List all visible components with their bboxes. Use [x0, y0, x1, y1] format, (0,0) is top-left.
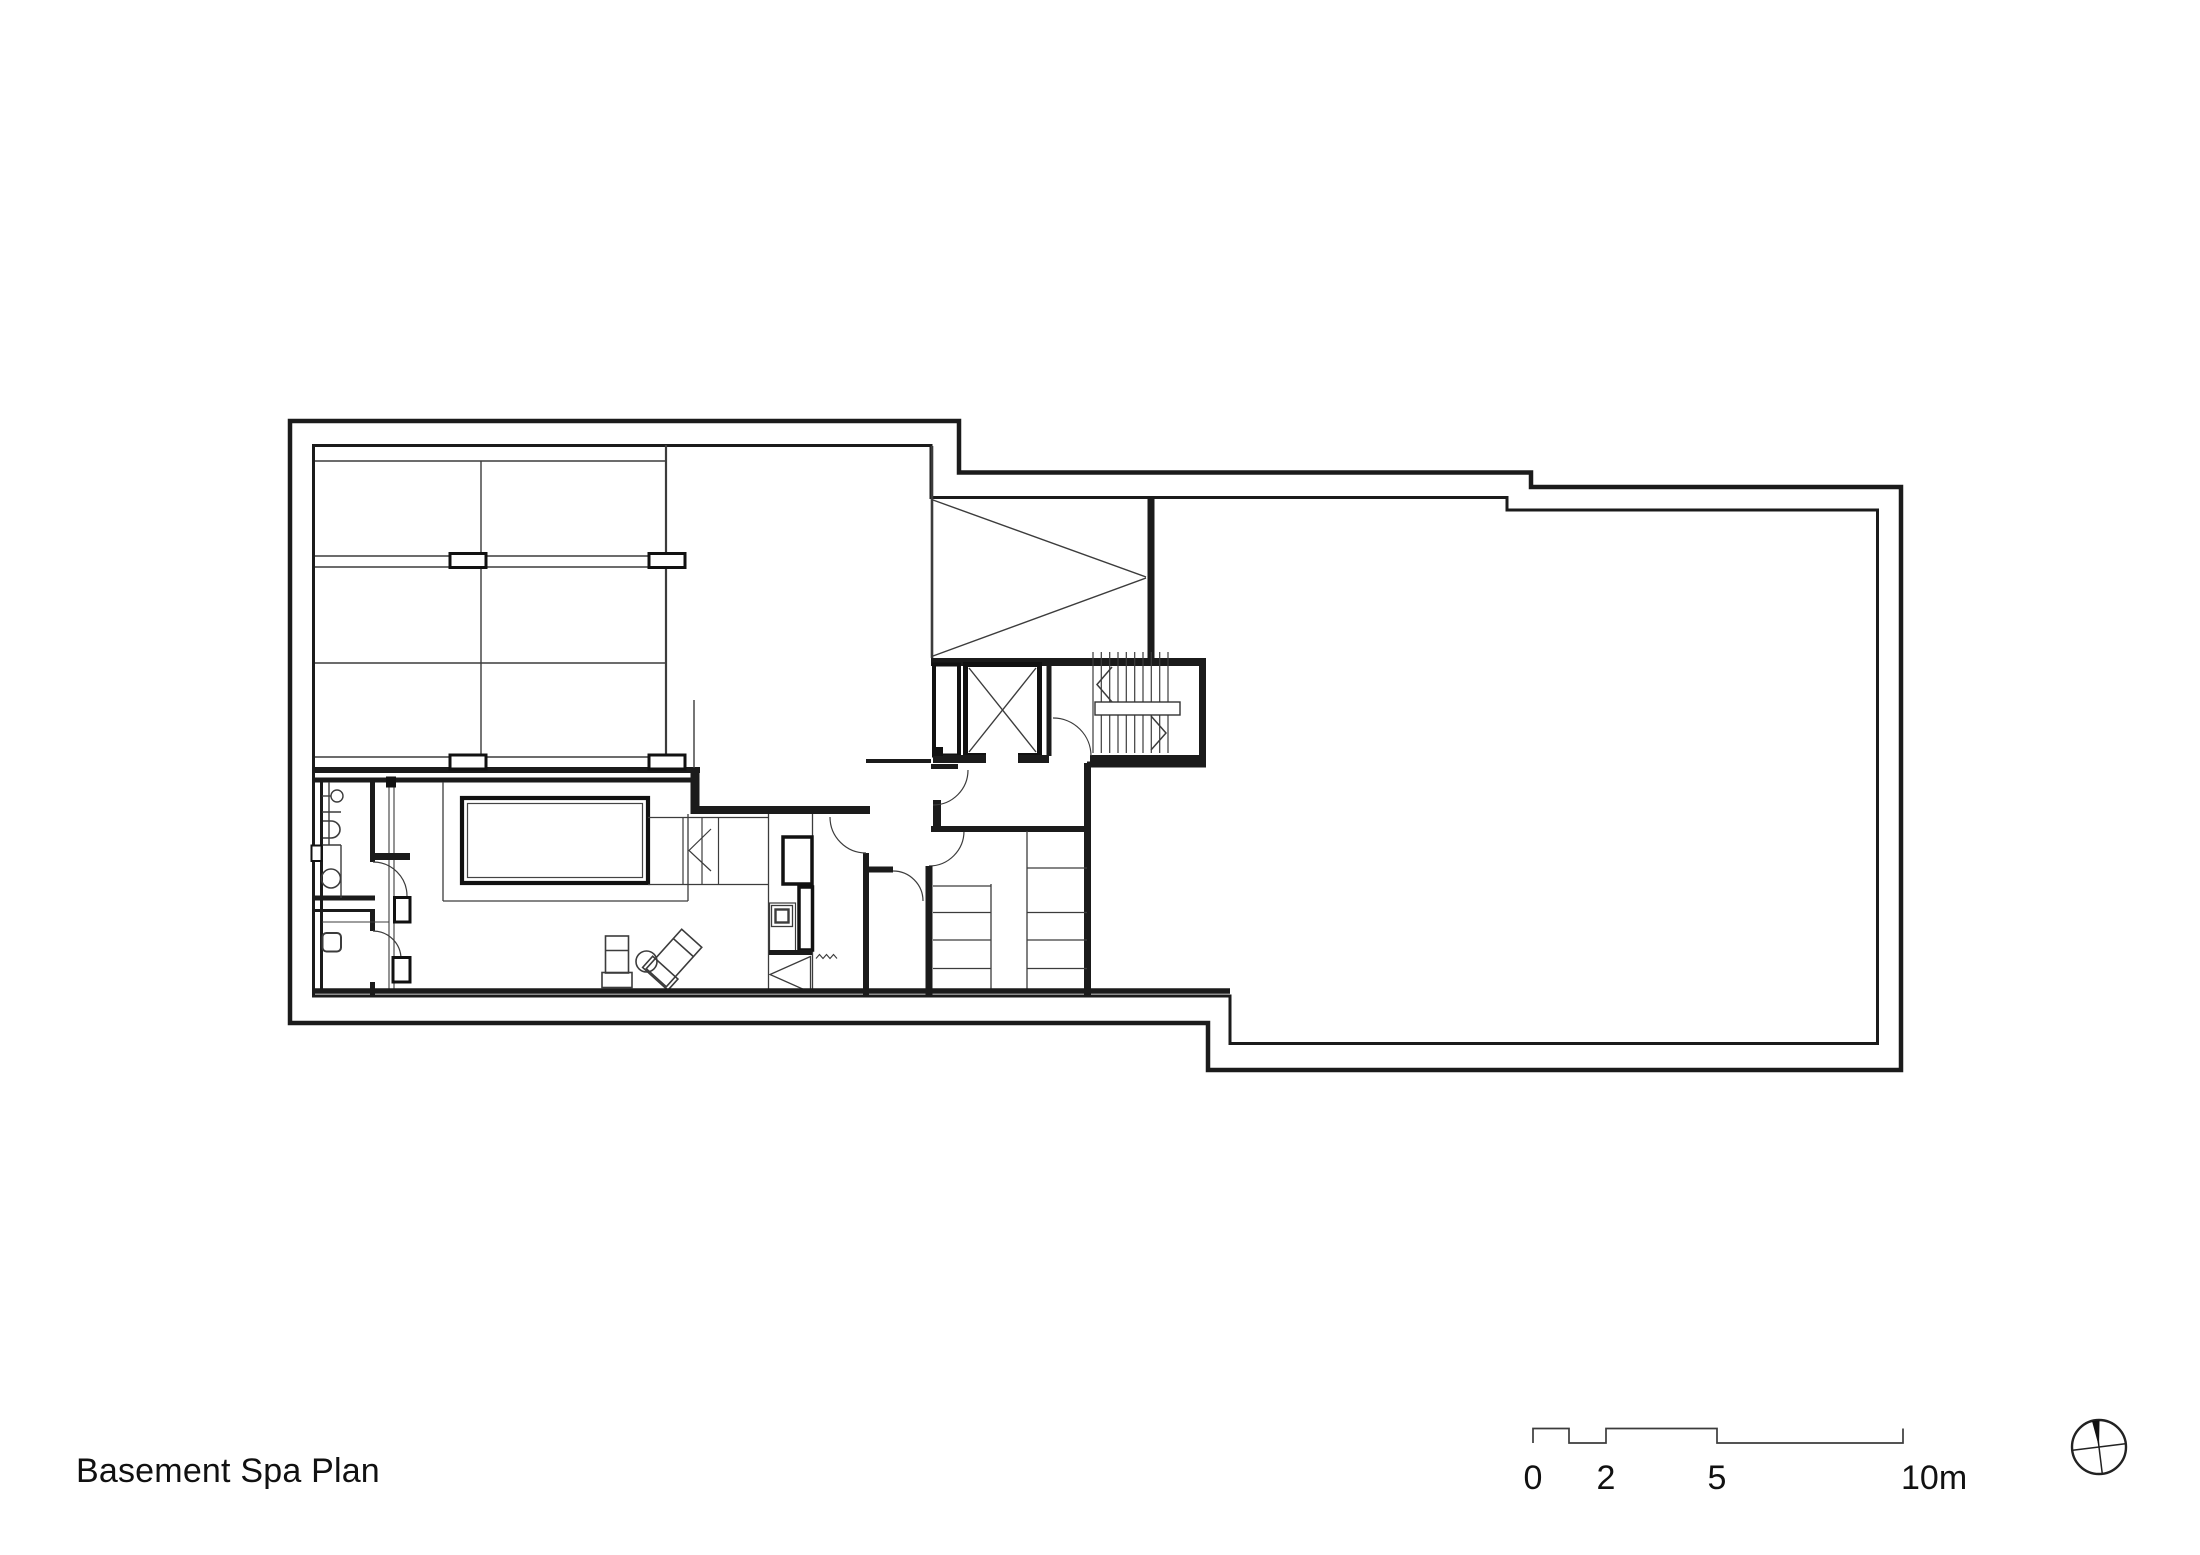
swimming-pool — [462, 798, 648, 883]
changing-rooms — [312, 777, 411, 997]
duct-shaft — [934, 665, 959, 756]
shower-strip — [769, 814, 838, 993]
storage-stair — [929, 763, 1206, 996]
ramp-room — [932, 446, 1151, 666]
water-symbol — [816, 955, 837, 959]
compass-north-icon — [2069, 1417, 2128, 1476]
niche — [312, 846, 322, 862]
scale-bar: 0 2 5 10m — [1524, 1429, 1968, 1498]
bench-symbol — [770, 957, 811, 993]
service-core — [931, 652, 1206, 766]
shower-stall — [783, 837, 812, 884]
lobby — [830, 747, 968, 996]
pool-steps — [648, 818, 768, 885]
shower-drain — [323, 933, 342, 952]
toilet — [323, 821, 340, 838]
wc-fixtures — [312, 782, 390, 952]
basin — [331, 790, 343, 802]
scale-label-5: 5 — [1708, 1459, 1727, 1497]
skylight-grid — [313, 445, 700, 770]
sheet: 0 2 5 10m Basement Spa Plan — [0, 0, 2200, 1555]
scale-label-0: 0 — [1524, 1459, 1543, 1497]
panel-clips — [450, 554, 685, 770]
stair-landing — [1095, 702, 1180, 715]
door-frame — [395, 898, 411, 923]
exterior-walls — [290, 421, 1901, 1070]
elevator-shaft — [966, 665, 1040, 761]
shower-stall — [799, 887, 813, 950]
door-frame — [393, 958, 410, 983]
loungers — [602, 927, 704, 990]
floor-plan-drawing: 0 2 5 10m — [0, 0, 2200, 1555]
scale-label-10m: 10m — [1901, 1459, 1967, 1497]
scale-label-2: 2 — [1597, 1459, 1616, 1497]
main-stair — [1053, 652, 1180, 756]
drawing-title: Basement Spa Plan — [76, 1452, 380, 1491]
sink — [322, 869, 341, 888]
